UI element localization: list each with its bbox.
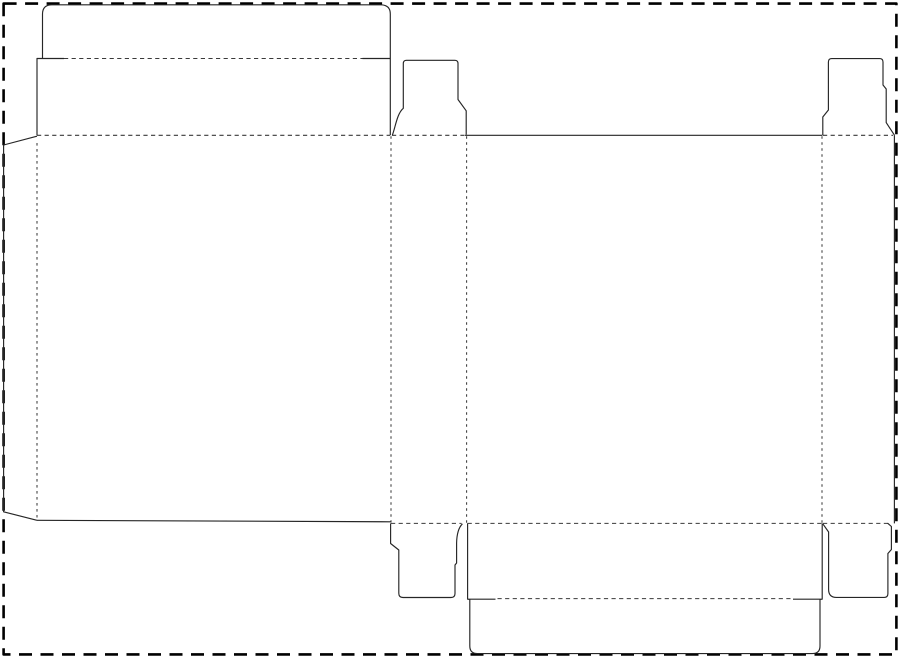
tuck-flap-top-outline bbox=[37, 5, 390, 136]
sheet-boundary-dashed-border bbox=[4, 4, 897, 655]
cut-lines-group bbox=[4, 5, 895, 654]
dust-tab-top-left-outline bbox=[392, 60, 466, 135]
dieline-stage bbox=[0, 0, 900, 658]
dust-tab-top-right-outline bbox=[823, 59, 895, 136]
seal-flap-bottom-outline bbox=[468, 523, 823, 653]
panel-vertical-fold-lines bbox=[37, 136, 822, 523]
dust-tab-bottom-left-outline bbox=[391, 523, 463, 597]
dieline-drawing bbox=[0, 0, 900, 658]
dust-tab-bottom-right-outline bbox=[823, 523, 892, 597]
fold-lines-group bbox=[37, 59, 893, 599]
left-panel-bottom-edge-cut bbox=[37, 520, 391, 522]
dust-flap-left-outline bbox=[4, 136, 37, 520]
